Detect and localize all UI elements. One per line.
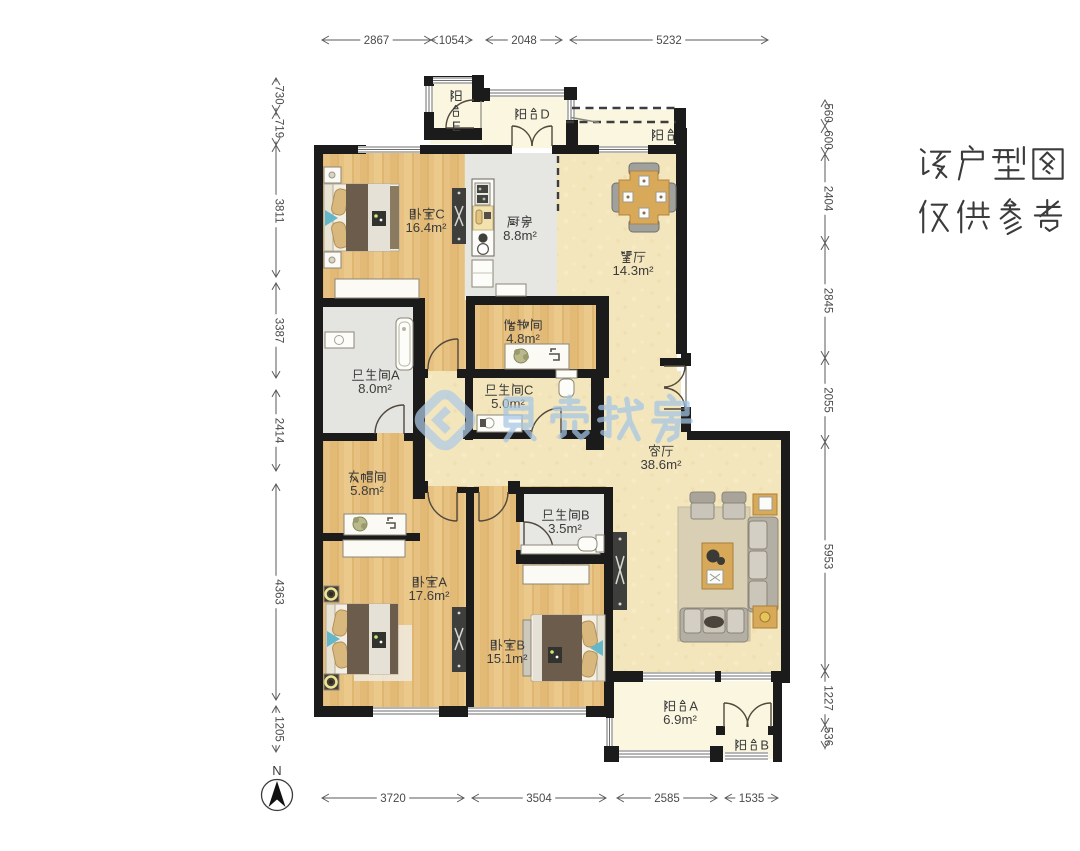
svg-text:2048: 2048 <box>511 35 537 47</box>
svg-text:1205: 1205 <box>273 716 285 742</box>
svg-text:3.5m²: 3.5m² <box>548 521 582 536</box>
svg-text:A: A <box>391 368 400 383</box>
svg-text:5953: 5953 <box>822 544 834 570</box>
svg-text:719: 719 <box>273 119 285 138</box>
svg-text:N: N <box>272 763 281 778</box>
svg-text:3811: 3811 <box>273 199 285 224</box>
svg-text:8.0m²: 8.0m² <box>358 381 392 396</box>
svg-text:15.1m²: 15.1m² <box>486 651 528 666</box>
svg-text:C: C <box>524 383 533 398</box>
svg-text:2055: 2055 <box>822 387 834 413</box>
svg-text:38.6m²: 38.6m² <box>640 457 682 472</box>
svg-text:17.6m²: 17.6m² <box>408 588 450 603</box>
svg-text:2404: 2404 <box>822 186 834 212</box>
svg-text:2585: 2585 <box>654 793 680 805</box>
svg-text:5.8m²: 5.8m² <box>350 483 384 498</box>
svg-text:B: B <box>760 738 769 753</box>
svg-text:3504: 3504 <box>526 793 552 805</box>
svg-text:8.8m²: 8.8m² <box>503 228 537 243</box>
svg-text:3720: 3720 <box>380 793 406 805</box>
svg-text:3387: 3387 <box>273 318 285 344</box>
svg-text:730: 730 <box>273 85 285 104</box>
svg-text:4363: 4363 <box>273 579 285 605</box>
svg-text:2845: 2845 <box>822 288 834 314</box>
svg-text:536: 536 <box>822 727 834 746</box>
svg-text:2414: 2414 <box>273 418 285 444</box>
svg-text:2867: 2867 <box>364 35 390 47</box>
svg-text:1535: 1535 <box>739 793 765 805</box>
svg-text:16.4m²: 16.4m² <box>405 220 447 235</box>
svg-text:560: 560 <box>822 103 834 122</box>
svg-text:1054: 1054 <box>439 35 465 47</box>
svg-text:14.3m²: 14.3m² <box>612 263 654 278</box>
svg-text:5232: 5232 <box>656 35 682 47</box>
svg-text:6.9m²: 6.9m² <box>663 712 697 727</box>
svg-text:1227: 1227 <box>822 685 834 711</box>
svg-text:D: D <box>540 107 549 122</box>
svg-text:4.8m²: 4.8m² <box>506 331 540 346</box>
svg-text:600: 600 <box>822 130 834 149</box>
svg-text:B: B <box>581 508 590 523</box>
svg-text:E: E <box>452 119 461 134</box>
